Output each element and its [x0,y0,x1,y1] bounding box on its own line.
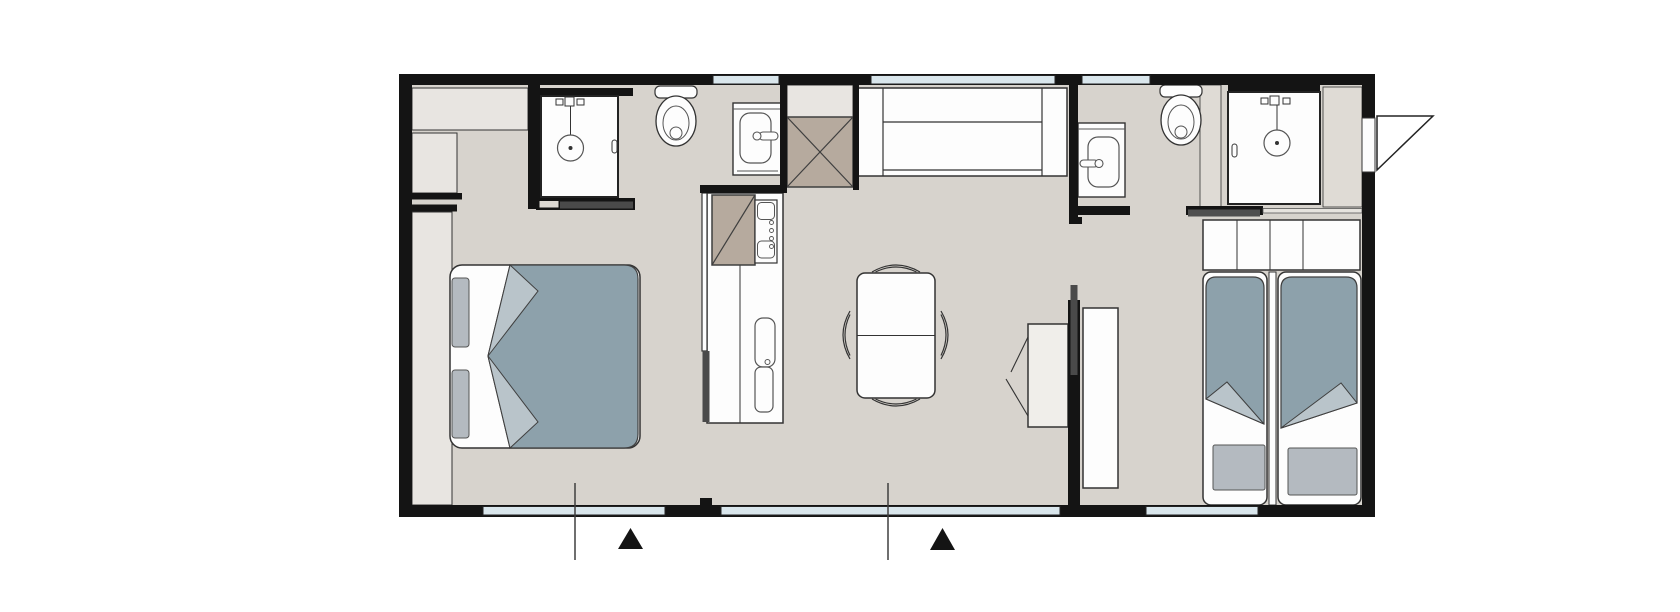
shower1-drain-dot [569,146,573,150]
shower2-door-handle [1232,144,1237,157]
burner-knob-4 [770,245,774,249]
burner-knob-2 [770,229,774,233]
wall-bed1-stub-1 [412,193,462,200]
wall-bath2-south [1069,206,1130,215]
wall-bed1-stub-2 [412,205,457,212]
kitchen-sliding-door [703,351,710,422]
window-bottom-1 [483,507,665,516]
shower1-mixer-3 [577,99,584,105]
wall-bath1-east [780,74,787,188]
sofa-base [858,88,1067,176]
shower1-top-bar [536,88,633,96]
kitchen-sink-drainer [755,367,773,412]
floorplan-page [0,0,1680,612]
wall-bed1-bath1 [528,85,540,209]
entry-swing-triangle [1377,116,1433,170]
shower2-top-bar [1228,85,1320,92]
floorplan-canvas [0,0,1680,612]
burner-knob-3 [770,237,774,241]
bed2-sliding-door [1188,210,1260,217]
bedroom2-wardrobe [1203,220,1360,270]
tv-cabinet [1028,324,1068,427]
xbox-upper-panel [787,85,853,117]
twin-bed-divider [1269,272,1276,505]
shower2-drain-dot [1275,141,1279,145]
wall-xbox-east [853,85,859,190]
shower2-mixer-1 [1261,98,1268,104]
burner-knob-1 [770,221,774,225]
window-bottom-2 [721,507,1060,516]
bed2-west-sliding-door [1071,285,1078,375]
bath1-sink-faucet-cap [753,132,761,140]
wall-right-upper [1362,74,1375,118]
bath2-sink-faucet-cap [1095,160,1103,168]
burner-plate-2 [758,241,775,258]
wall-right-lower [1362,172,1375,517]
bath1-door-pocket [540,201,559,208]
wall-left [399,74,412,517]
bath2-side-panel [1200,85,1221,207]
window-top-1 [713,76,779,85]
entry-vestibule-panel [1323,87,1362,207]
window-bottom-3 [1146,507,1258,516]
bath1-sliding-door [560,202,633,209]
bed2-door-track [1263,209,1362,214]
bed1-closet-top [412,88,528,130]
double-bed-pillow-1 [452,278,469,347]
window-top-2 [871,76,1055,85]
twin-bed-left-pillow [1213,445,1265,490]
twin-bed-right-pillow [1288,448,1357,495]
entrance-marker-arrow-1 [618,528,643,549]
kitchen-sink-basin [755,318,775,367]
bath1-sink-faucet [759,132,778,140]
toilet2-drain [1175,126,1187,138]
wall-kitchen-north [700,185,787,193]
wall-bath2-west-foot [1069,217,1082,224]
burner-plate-1 [758,203,775,220]
bedroom2-desk [1083,308,1118,488]
shower2-mixer-2 [1270,96,1279,105]
wall-bath2-west [1069,85,1078,217]
kitchen-partition [702,193,707,351]
entrance-marker-arrow-2 [930,528,955,550]
bed1-closet-upper-left [412,133,457,193]
window-top-3 [1082,76,1150,85]
shower1-door-handle [612,140,617,153]
shower1-mixer-1 [556,99,563,105]
bed1-closet-left [412,212,452,505]
shower2-mixer-3 [1283,98,1290,104]
entry-door-leaf [1362,118,1375,172]
door-latch-tick [700,498,712,506]
double-bed-pillow-2 [452,370,469,438]
shower1-mixer-2 [565,97,574,106]
toilet1-drain [670,127,682,139]
